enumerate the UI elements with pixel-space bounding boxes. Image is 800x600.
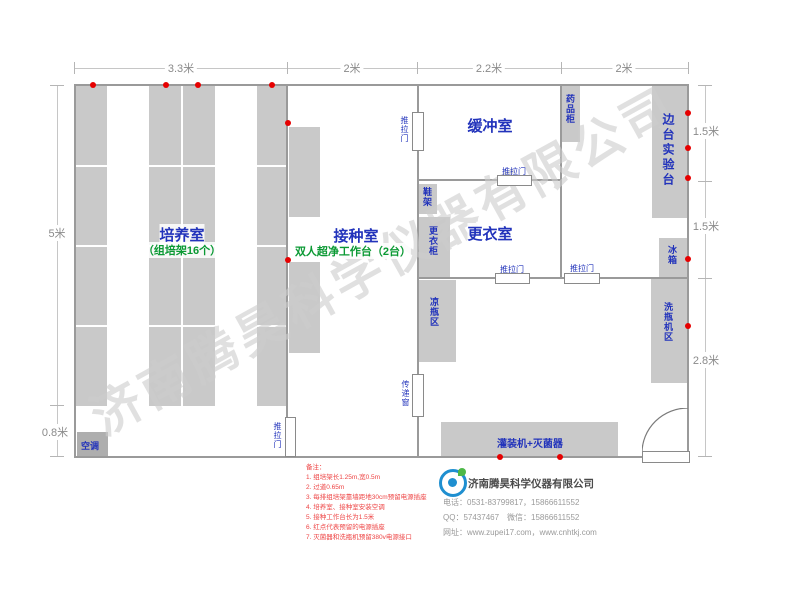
dim-tick (698, 181, 712, 182)
wall-bottom (74, 456, 689, 458)
dim-line-right (705, 85, 706, 457)
sliding-door-label: 推拉门 (400, 116, 408, 143)
dim-left-2: 0.8米 (39, 424, 71, 440)
room-sub-cultivation: （组培架16个） (143, 242, 221, 258)
note-item: 5. 接种工作台长为1.5米 (306, 513, 427, 523)
note-item: 7. 灭菌器和洗瓶机预留380v电源接口 (306, 533, 427, 543)
note-item: 4. 培养室、接种室安装空调 (306, 503, 427, 513)
wall-changing-south (417, 277, 689, 279)
leaf-icon (458, 468, 466, 476)
power-socket-dot (269, 82, 275, 88)
cool-bottle-label: 凉瓶区 (429, 297, 438, 327)
power-socket-dot (163, 82, 169, 88)
company-qq-wechat: QQ：57437467 微信：15866611552 (443, 512, 579, 523)
note-item: 1. 组培架长1.25m,宽0.5m (306, 473, 427, 483)
wall-cultivation-inoculation (286, 84, 288, 458)
dim-tick (417, 62, 418, 74)
power-socket-dot (285, 120, 291, 126)
clean-bench-block (289, 262, 320, 353)
dim-line-left (57, 85, 58, 457)
bottle-washer-label: 洗瓶机区 (663, 302, 672, 342)
filling-machine-label: 灌装机+灭菌器 (497, 435, 563, 450)
dim-top-3: 2.2米 (473, 60, 505, 76)
company-website: 网址：www.zupei17.com，www.cnhtkj.com (443, 527, 597, 538)
wall-right (687, 84, 689, 458)
company-name: 济南腾昊科学仪器有限公司 (468, 476, 594, 491)
dim-tick (50, 85, 64, 86)
culture-rack-column (76, 86, 107, 406)
clean-bench-block (289, 127, 320, 217)
sliding-door-label: 推拉门 (500, 264, 524, 275)
power-socket-dot (497, 454, 503, 460)
dim-tick (688, 62, 689, 74)
company-phone: 电话：0531-83799817，15866611552 (443, 497, 579, 508)
shoe-rack-label: 鞋架 (422, 187, 431, 207)
power-socket-dot (685, 256, 691, 262)
dim-right-1: 1.5米 (690, 123, 722, 139)
dim-top-1: 3.3米 (165, 60, 197, 76)
dim-tick (698, 85, 712, 86)
room-label-buffer: 缓冲室 (467, 115, 512, 136)
note-item: 3. 每排组培架靠墙距地30cm预留电源插座 (306, 493, 427, 503)
notes-title: 备注： (306, 463, 427, 473)
sliding-door-symbol (412, 112, 424, 151)
medicine-cabinet-label: 药品柜 (565, 94, 574, 124)
power-socket-dot (90, 82, 96, 88)
note-item: 6. 红点代表预留的电源插座 (306, 523, 427, 533)
dim-top-4: 2米 (612, 60, 635, 76)
dim-right-2: 1.5米 (690, 218, 722, 234)
sliding-door-label: 推拉门 (502, 166, 526, 177)
company-logo-icon (439, 469, 467, 497)
room-label-changing: 更衣室 (467, 223, 512, 244)
dim-tick (561, 62, 562, 74)
power-socket-dot (195, 82, 201, 88)
culture-rack-column (257, 86, 287, 406)
power-socket-dot (557, 454, 563, 460)
side-bench-label: 边台实验台 (662, 113, 674, 188)
fridge-label: 冰箱 (667, 245, 676, 265)
dim-top-2: 2米 (340, 60, 363, 76)
entrance-door-leaf (642, 451, 690, 463)
power-socket-dot (685, 323, 691, 329)
dim-right-3: 2.8米 (690, 352, 722, 368)
sliding-door-symbol (564, 273, 600, 284)
sliding-door-label: 推拉门 (273, 422, 281, 449)
note-item: 2. 过道0.65m (306, 483, 427, 493)
power-socket-dot (285, 257, 291, 263)
dim-tick (50, 405, 64, 406)
wall-buffer-sidebench (560, 84, 562, 279)
notes-block: 备注： 1. 组培架长1.25m,宽0.5m 2. 过道0.65m 3. 每排组… (306, 463, 427, 543)
ac-label: 空调 (81, 439, 99, 452)
dim-tick (287, 62, 288, 74)
entrance-door-arc (642, 408, 690, 454)
dim-tick (698, 278, 712, 279)
sliding-door-label: 推拉门 (570, 263, 594, 274)
power-socket-dot (685, 145, 691, 151)
power-socket-dot (685, 175, 691, 181)
dim-tick (698, 456, 712, 457)
dim-tick (74, 62, 75, 74)
room-sub-inoculation: 双人超净工作台（2台） (295, 243, 411, 259)
dim-tick (50, 456, 64, 457)
wall-buffer-changing (417, 179, 562, 181)
transfer-window-symbol (412, 374, 424, 417)
dim-left-1: 5米 (45, 225, 68, 241)
sliding-door-symbol (285, 417, 296, 457)
locker-label: 更衣柜 (428, 226, 437, 256)
floor-plan-page: 济南腾昊科学仪器有限公司 3.3米 2米 2.2米 2米 5米 0.8米 1.5… (0, 0, 800, 600)
power-socket-dot (685, 110, 691, 116)
transfer-window-label: 传递窗 (401, 380, 409, 407)
wall-left (74, 84, 76, 458)
swirl-icon (448, 478, 457, 487)
